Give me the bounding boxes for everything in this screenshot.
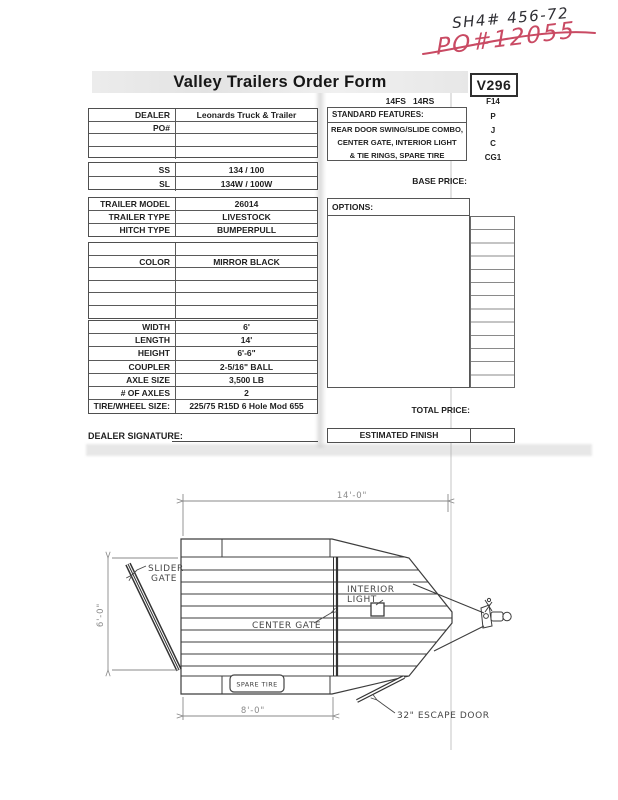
row-label: TRAILER TYPE (89, 211, 176, 223)
row-label: COUPLER (89, 361, 176, 373)
row-value: 2 (176, 387, 317, 399)
row-label: # OF AXLES (89, 387, 176, 399)
color-table: COLOR MIRROR BLACK (88, 242, 318, 319)
row-label: AXLE SIZE (89, 374, 176, 386)
model-numbers: 14FS 14RS (350, 96, 470, 106)
interior-light-label-1: INTERIOR (347, 585, 395, 595)
row-value (176, 243, 317, 255)
row-value (176, 268, 317, 280)
standard-features-box: STANDARD FEATURES: REAR DOOR SWING/SLIDE… (327, 107, 467, 161)
table-row (89, 293, 317, 306)
row-value (176, 147, 317, 160)
table-row: SL 134W / 100W (89, 177, 317, 191)
dim-length-label: 14'-0" (337, 491, 367, 501)
table-row: TIRE/WHEEL SIZE: 225/75 R15D 6 Hole Mod … (89, 400, 317, 413)
table-row: TRAILER MODEL 26014 (89, 198, 317, 211)
row-label (89, 281, 176, 293)
standard-feature-line: CENTER GATE, INTERIOR LIGHT (328, 136, 466, 149)
table-row (89, 268, 317, 281)
row-value (176, 306, 317, 319)
row-value: 2-5/16" BALL (176, 361, 317, 373)
trailer-diagram: SPARE TIRE SLIDER GATE CENTER GATE INTER… (85, 480, 525, 760)
table-row (89, 134, 317, 147)
row-value (176, 134, 317, 146)
table-row (89, 281, 317, 294)
options-label: OPTIONS: (328, 199, 469, 216)
dealer-signature-label: DEALER SIGNATURE: (88, 431, 183, 441)
row-label (89, 268, 176, 280)
feature-code: P (478, 110, 508, 124)
row-label: WIDTH (89, 321, 176, 333)
row-label: SL (89, 177, 176, 191)
feature-code: C (478, 137, 508, 151)
row-label (89, 306, 176, 319)
table-row (89, 306, 317, 319)
model-table: TRAILER MODEL 26014 TRAILER TYPE LIVESTO… (88, 197, 318, 237)
table-row: # OF AXLES 2 (89, 387, 317, 400)
table-row: DEALER Leonards Truck & Trailer (89, 109, 317, 122)
spare-tire-box: SPARE TIRE (230, 675, 284, 692)
row-label: HITCH TYPE (89, 224, 176, 237)
slider-gate-label-1: SLIDER (148, 564, 184, 574)
row-value (176, 293, 317, 305)
row-value: BUMPERPULL (176, 224, 317, 237)
handwritten-red-stroke (415, 16, 600, 68)
table-row: AXLE SIZE 3,500 LB (89, 374, 317, 387)
row-label: PO# (89, 122, 176, 134)
feature-codes-column: PJCCG1 (478, 110, 508, 164)
row-label: HEIGHT (89, 347, 176, 359)
table-row: SS 134 / 100 (89, 163, 317, 177)
table-row: HITCH TYPE BUMPERPULL (89, 224, 317, 237)
options-box: OPTIONS: (327, 198, 470, 388)
row-label (89, 134, 176, 146)
table-row (89, 243, 317, 256)
form-code-box: V296 (470, 73, 518, 97)
table-row: COUPLER 2-5/16" BALL (89, 361, 317, 374)
dimension-rear: 8'-0" (183, 697, 333, 720)
row-value: 14' (176, 334, 317, 346)
specs-table: WIDTH 6' LENGTH 14' HEIGHT 6'-6" COUPLER… (88, 320, 318, 414)
dealer-signature-line (172, 441, 318, 442)
dim-height-label: 6'-0" (96, 603, 106, 627)
table-row: PO# (89, 122, 317, 135)
standard-feature-line: REAR DOOR SWING/SLIDE COMBO, (328, 123, 466, 136)
row-label: DEALER (89, 109, 176, 121)
row-label: TIRE/WHEEL SIZE: (89, 400, 176, 413)
row-value: 3,500 LB (176, 374, 317, 386)
dimension-length: 14'-0" (183, 491, 448, 536)
row-value: LIVESTOCK (176, 211, 317, 223)
row-label: SS (89, 163, 176, 176)
row-value: Leonards Truck & Trailer (176, 109, 317, 121)
scanned-order-form: SH4# 456-72 PO#12055 Valley Trailers Ord… (0, 0, 618, 800)
dealer-table: DEALER Leonards Truck & Trailer PO# (88, 108, 318, 158)
row-value: 134W / 100W (176, 177, 317, 191)
row-value: 6'-6" (176, 347, 317, 359)
row-label: COLOR (89, 256, 176, 268)
table-row (89, 147, 317, 160)
row-value: MIRROR BLACK (176, 256, 317, 268)
serial-table: SS 134 / 100 SL 134W / 100W (88, 162, 318, 190)
row-value: 6' (176, 321, 317, 333)
table-row: TRAILER TYPE LIVESTOCK (89, 211, 317, 224)
feature-code: CG1 (478, 151, 508, 165)
escape-door-callout: 32" ESCAPE DOOR (377, 700, 490, 721)
estimated-finish-label: ESTIMATED FINISH (328, 429, 471, 442)
model-code: F14 (478, 97, 508, 106)
escape-door-label: 32" ESCAPE DOOR (397, 711, 490, 721)
center-gate-label: CENTER GATE (252, 621, 321, 631)
dim-rear-label: 8'-0" (241, 706, 265, 716)
row-value: 225/75 R15D 6 Hole Mod 655 (176, 400, 317, 413)
scan-shadow-band (86, 444, 592, 456)
coupler-icon (481, 598, 511, 628)
row-value: 134 / 100 (176, 163, 317, 176)
standard-features-list: REAR DOOR SWING/SLIDE COMBO,CENTER GATE,… (328, 123, 466, 162)
trailer-body (181, 539, 452, 694)
spare-tire-label: SPARE TIRE (236, 681, 277, 689)
slider-gate-label-2: GATE (151, 574, 177, 584)
estimated-finish-value-cell (471, 429, 514, 442)
table-row: WIDTH 6' (89, 321, 317, 334)
row-value (176, 122, 317, 134)
base-price-label: BASE PRICE: (327, 176, 467, 186)
row-label: TRAILER MODEL (89, 198, 176, 210)
table-row: HEIGHT 6'-6" (89, 347, 317, 360)
price-entry-column (470, 216, 515, 388)
row-label (89, 243, 176, 255)
slider-gate-callout: SLIDER GATE (132, 564, 184, 584)
row-value (176, 281, 317, 293)
row-label (89, 293, 176, 305)
standard-feature-line: & TIE RINGS, SPARE TIRE (328, 149, 466, 162)
table-row: COLOR MIRROR BLACK (89, 256, 317, 269)
feature-code: J (478, 124, 508, 138)
standard-features-title: STANDARD FEATURES: (328, 108, 466, 123)
estimated-finish-box: ESTIMATED FINISH (327, 428, 515, 443)
table-row: LENGTH 14' (89, 334, 317, 347)
row-value: 26014 (176, 198, 317, 210)
total-price-label: TOTAL PRICE: (327, 405, 470, 415)
page-title: Valley Trailers Order Form (92, 71, 468, 93)
interior-light-label-2: LIGHT (347, 595, 377, 605)
row-label (89, 147, 176, 160)
row-label: LENGTH (89, 334, 176, 346)
